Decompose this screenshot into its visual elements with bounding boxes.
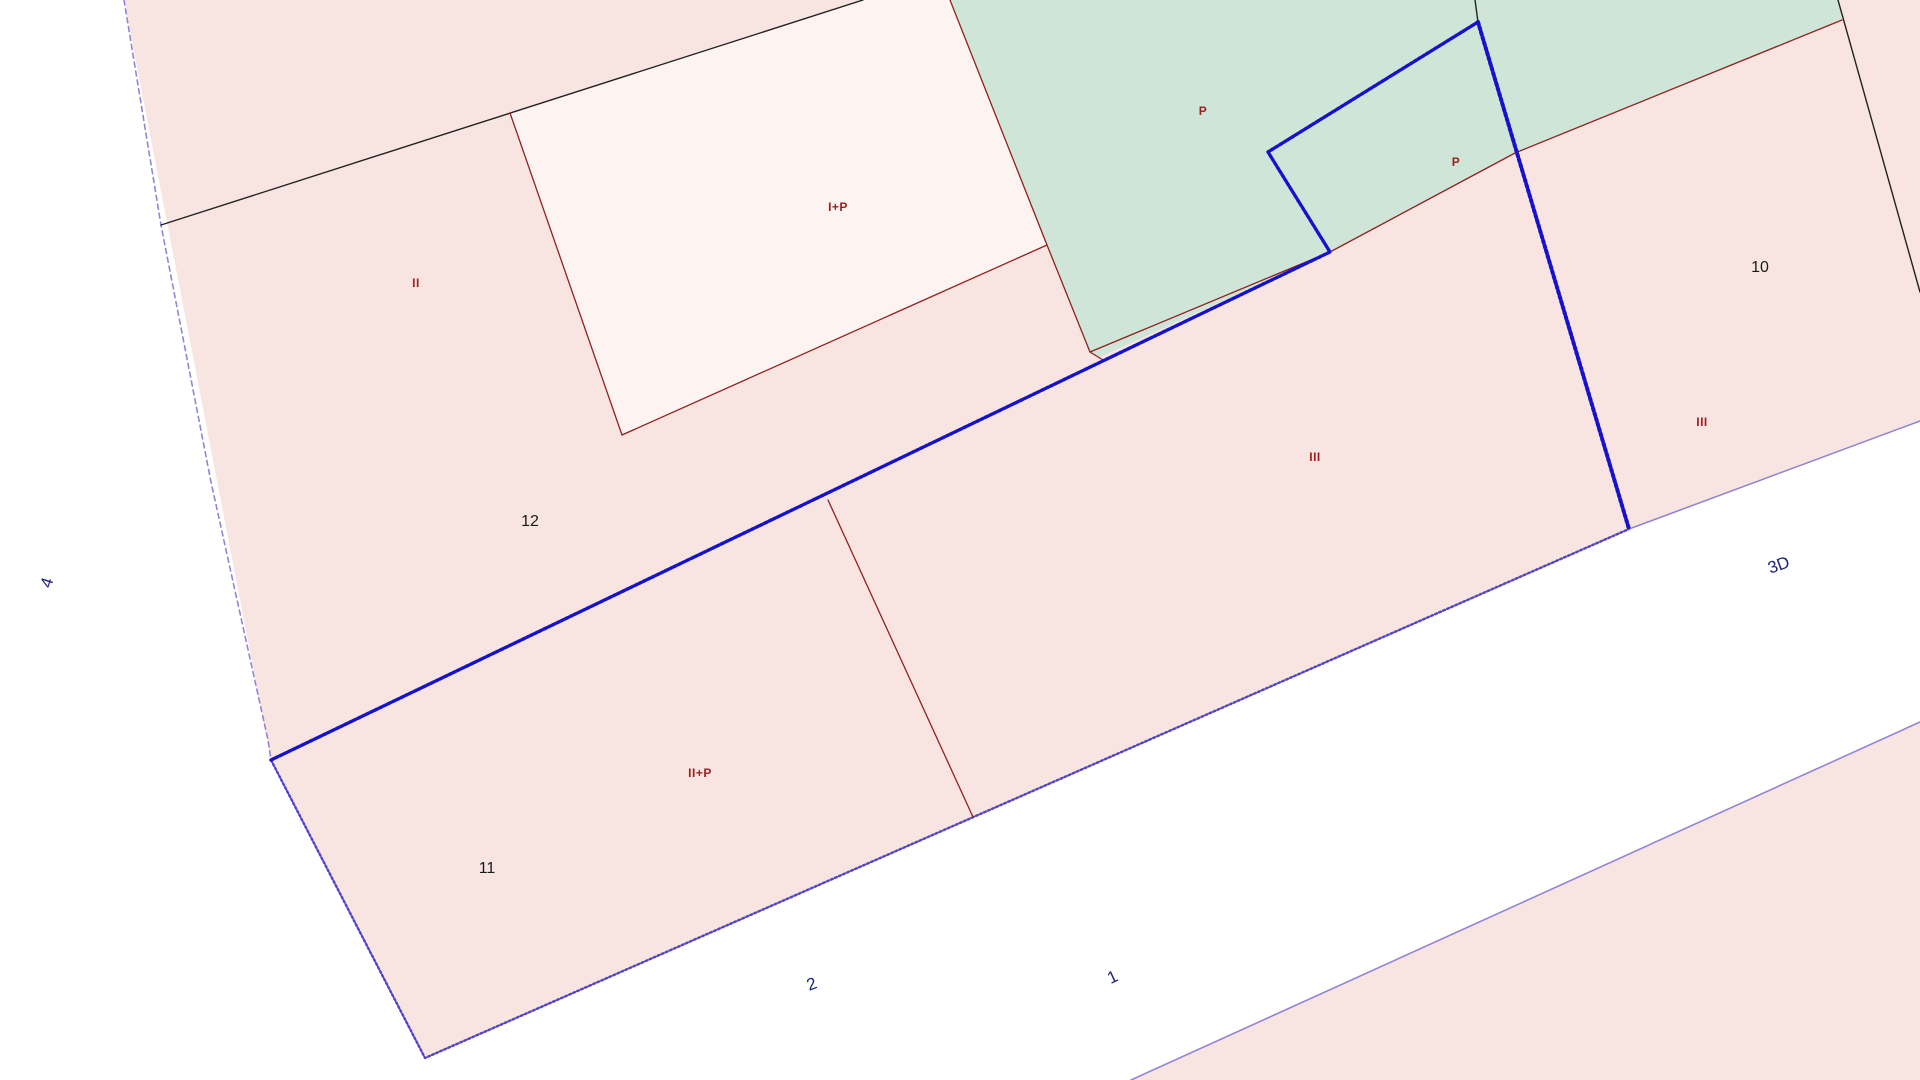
road-label-4: 4: [37, 575, 58, 590]
storey-label-i-p: I+P: [828, 200, 848, 214]
road-label-3d: 3D: [1765, 552, 1792, 577]
storey-label-p-green: P: [1199, 104, 1208, 118]
storey-label-ii-p: II+P: [688, 766, 712, 780]
road-label-1: 1: [1104, 966, 1121, 987]
road-label-2: 2: [804, 973, 819, 994]
storey-label-ii: II: [412, 276, 420, 290]
cadastral-map[interactable]: III+PPPIIIIIIII+P1211104213D: [0, 0, 1920, 1080]
parcel-number-12: 12: [521, 513, 539, 530]
storey-label-iii-right: III: [1696, 415, 1708, 429]
storey-label-iii-mid: III: [1309, 450, 1321, 464]
parcel-polygons-layer: [124, 0, 1920, 1080]
parcel-number-10: 10: [1751, 259, 1769, 276]
storey-label-p-small: P: [1452, 155, 1461, 169]
map-viewport[interactable]: III+PPPIIIIIIII+P1211104213D: [0, 0, 1920, 1080]
parcel-number-11: 11: [479, 860, 496, 877]
